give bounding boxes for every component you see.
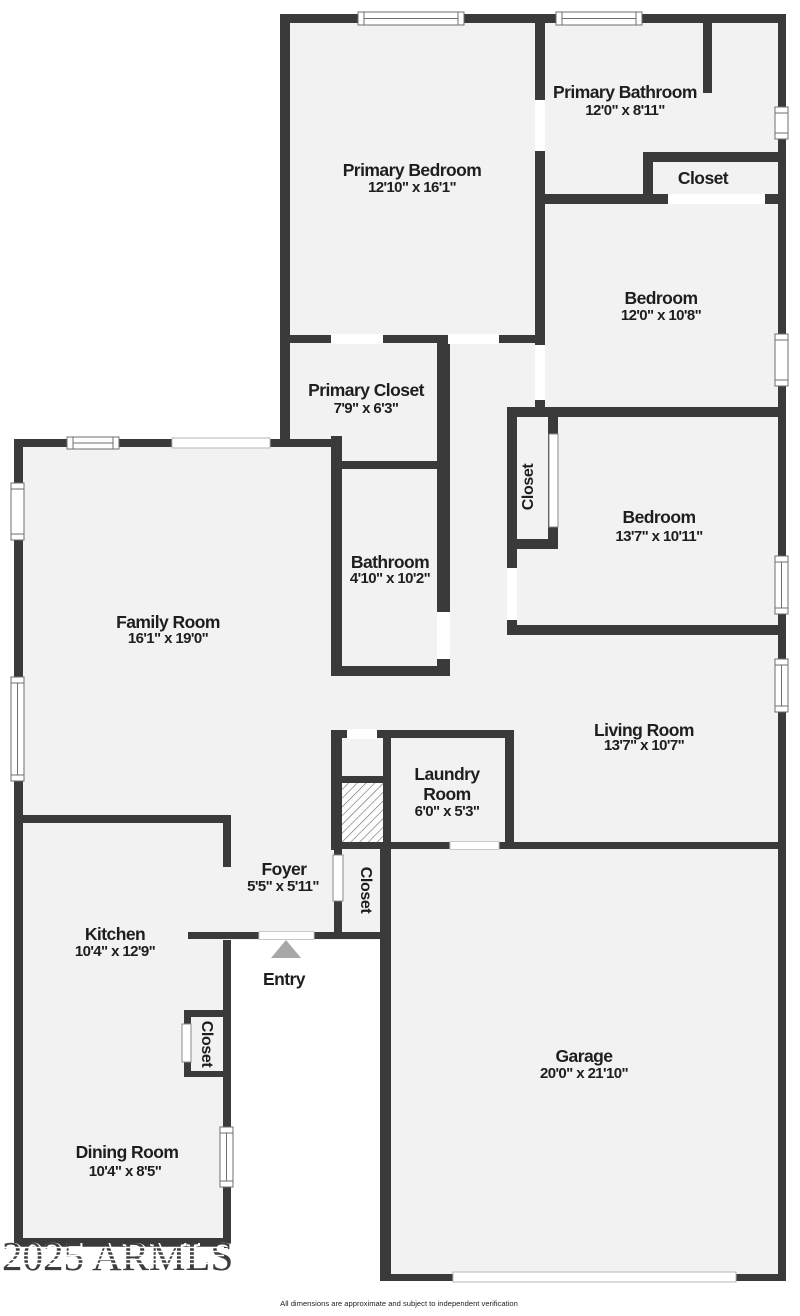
svg-text:12'0" x 8'11": 12'0" x 8'11" <box>585 102 665 119</box>
svg-text:12'0" x 10'8": 12'0" x 10'8" <box>621 307 702 324</box>
svg-text:Closet: Closet <box>357 867 374 915</box>
svg-text:Foyer: Foyer <box>262 859 308 879</box>
svg-text:20'0" x 21'10": 20'0" x 21'10" <box>540 1065 629 1082</box>
svg-text:13'7" x 10'11": 13'7" x 10'11" <box>615 528 703 545</box>
svg-text:Closet: Closet <box>678 168 729 188</box>
svg-text:All dimensions are approximate: All dimensions are approximate and subje… <box>280 1299 518 1308</box>
svg-text:Room: Room <box>423 784 470 804</box>
svg-text:Closet: Closet <box>520 463 537 511</box>
svg-text:12'10" x 16'1": 12'10" x 16'1" <box>368 179 457 196</box>
svg-text:16'1" x 19'0": 16'1" x 19'0" <box>128 630 209 647</box>
svg-text:Entry: Entry <box>263 969 306 989</box>
svg-text:Garage: Garage <box>555 1046 613 1066</box>
svg-text:Laundry: Laundry <box>414 764 480 784</box>
svg-text:10'4" x 8'5": 10'4" x 8'5" <box>89 1163 162 1180</box>
svg-text:Family Room: Family Room <box>116 612 220 632</box>
svg-text:Kitchen: Kitchen <box>85 924 145 944</box>
svg-text:Primary Bedroom: Primary Bedroom <box>343 160 482 180</box>
svg-text:Bedroom: Bedroom <box>625 288 698 308</box>
svg-text:4'10" x 10'2": 4'10" x 10'2" <box>350 570 431 587</box>
svg-text:Primary Closet: Primary Closet <box>308 380 425 400</box>
svg-text:10'4" x 12'9": 10'4" x 12'9" <box>75 943 156 960</box>
svg-text:Bedroom: Bedroom <box>623 507 696 527</box>
svg-text:Primary Bathroom: Primary Bathroom <box>553 82 697 102</box>
svg-text:Closet: Closet <box>198 1021 215 1069</box>
svg-text:7'9" x 6'3": 7'9" x 6'3" <box>334 400 399 417</box>
svg-text:Bathroom: Bathroom <box>351 552 429 572</box>
svg-text:5'5" x 5'11": 5'5" x 5'11" <box>247 878 319 895</box>
svg-text:13'7" x 10'7": 13'7" x 10'7" <box>604 737 685 754</box>
svg-text:6'0" x 5'3": 6'0" x 5'3" <box>415 803 480 820</box>
svg-text:Dining Room: Dining Room <box>76 1142 179 1162</box>
